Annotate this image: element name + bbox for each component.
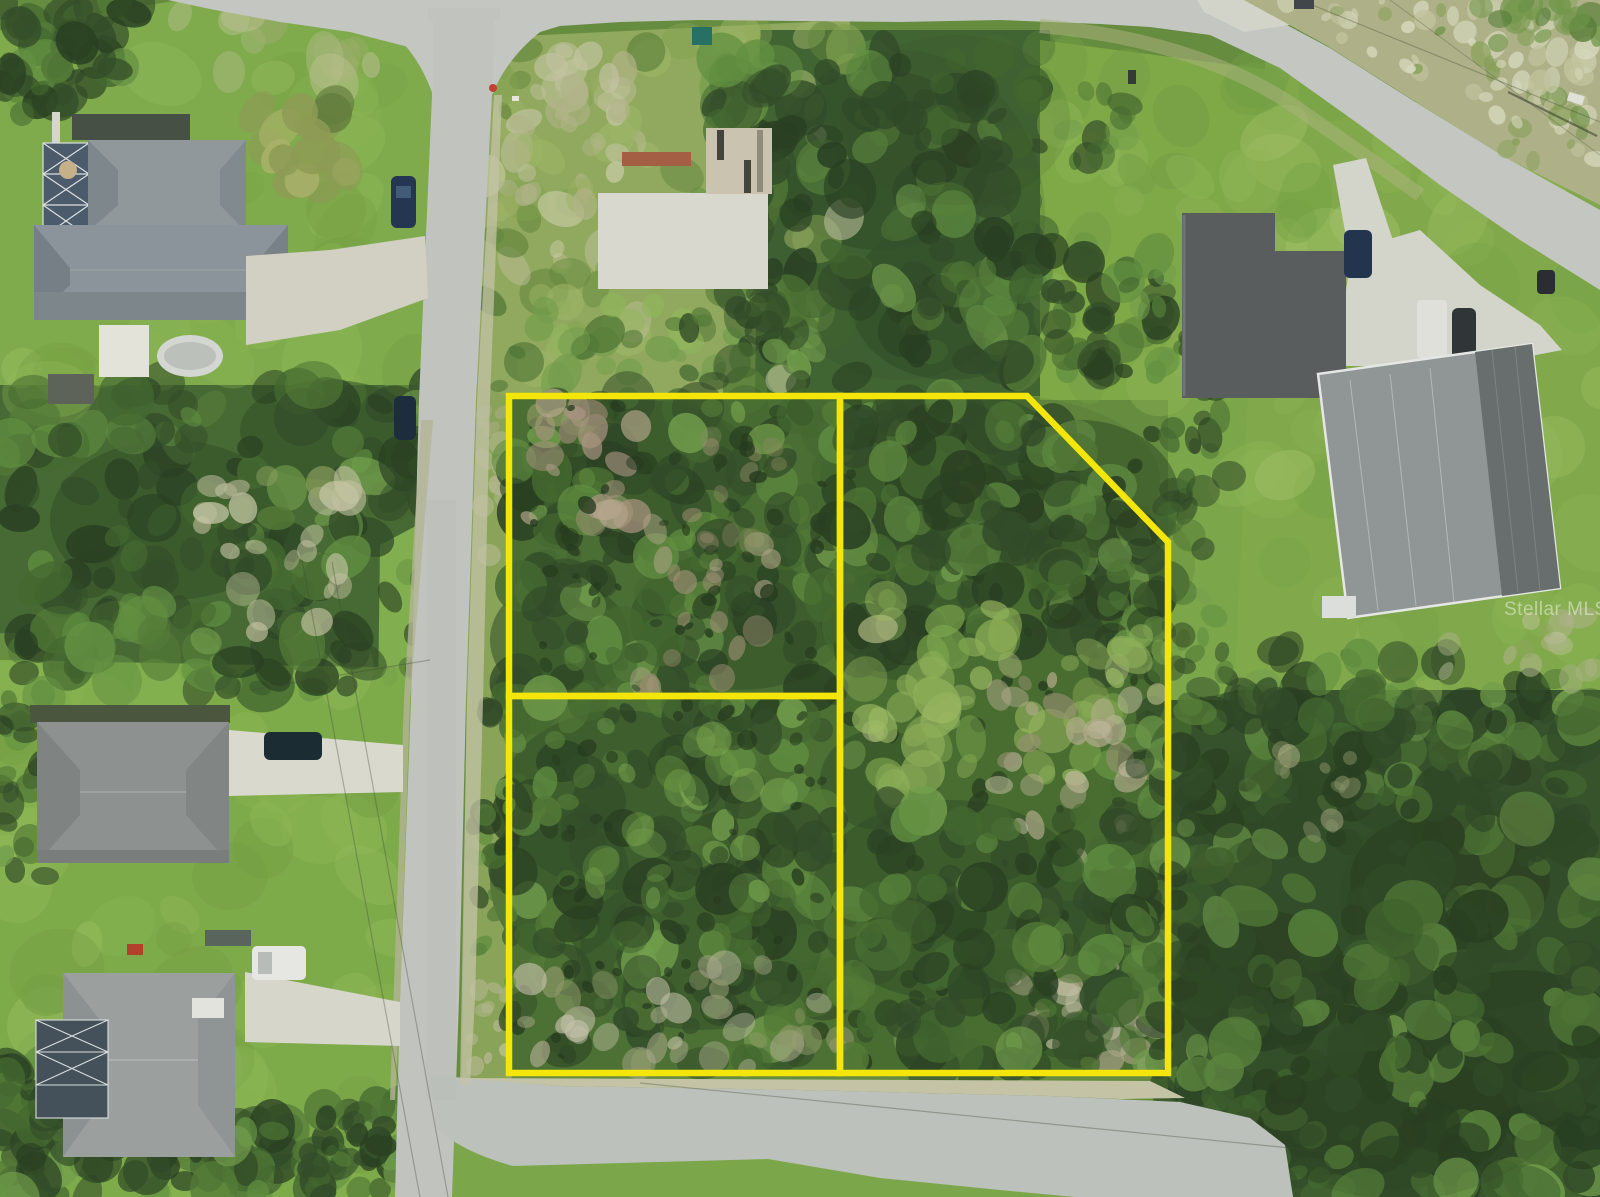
svg-text:Stellar MLS: Stellar MLS xyxy=(1504,599,1600,620)
